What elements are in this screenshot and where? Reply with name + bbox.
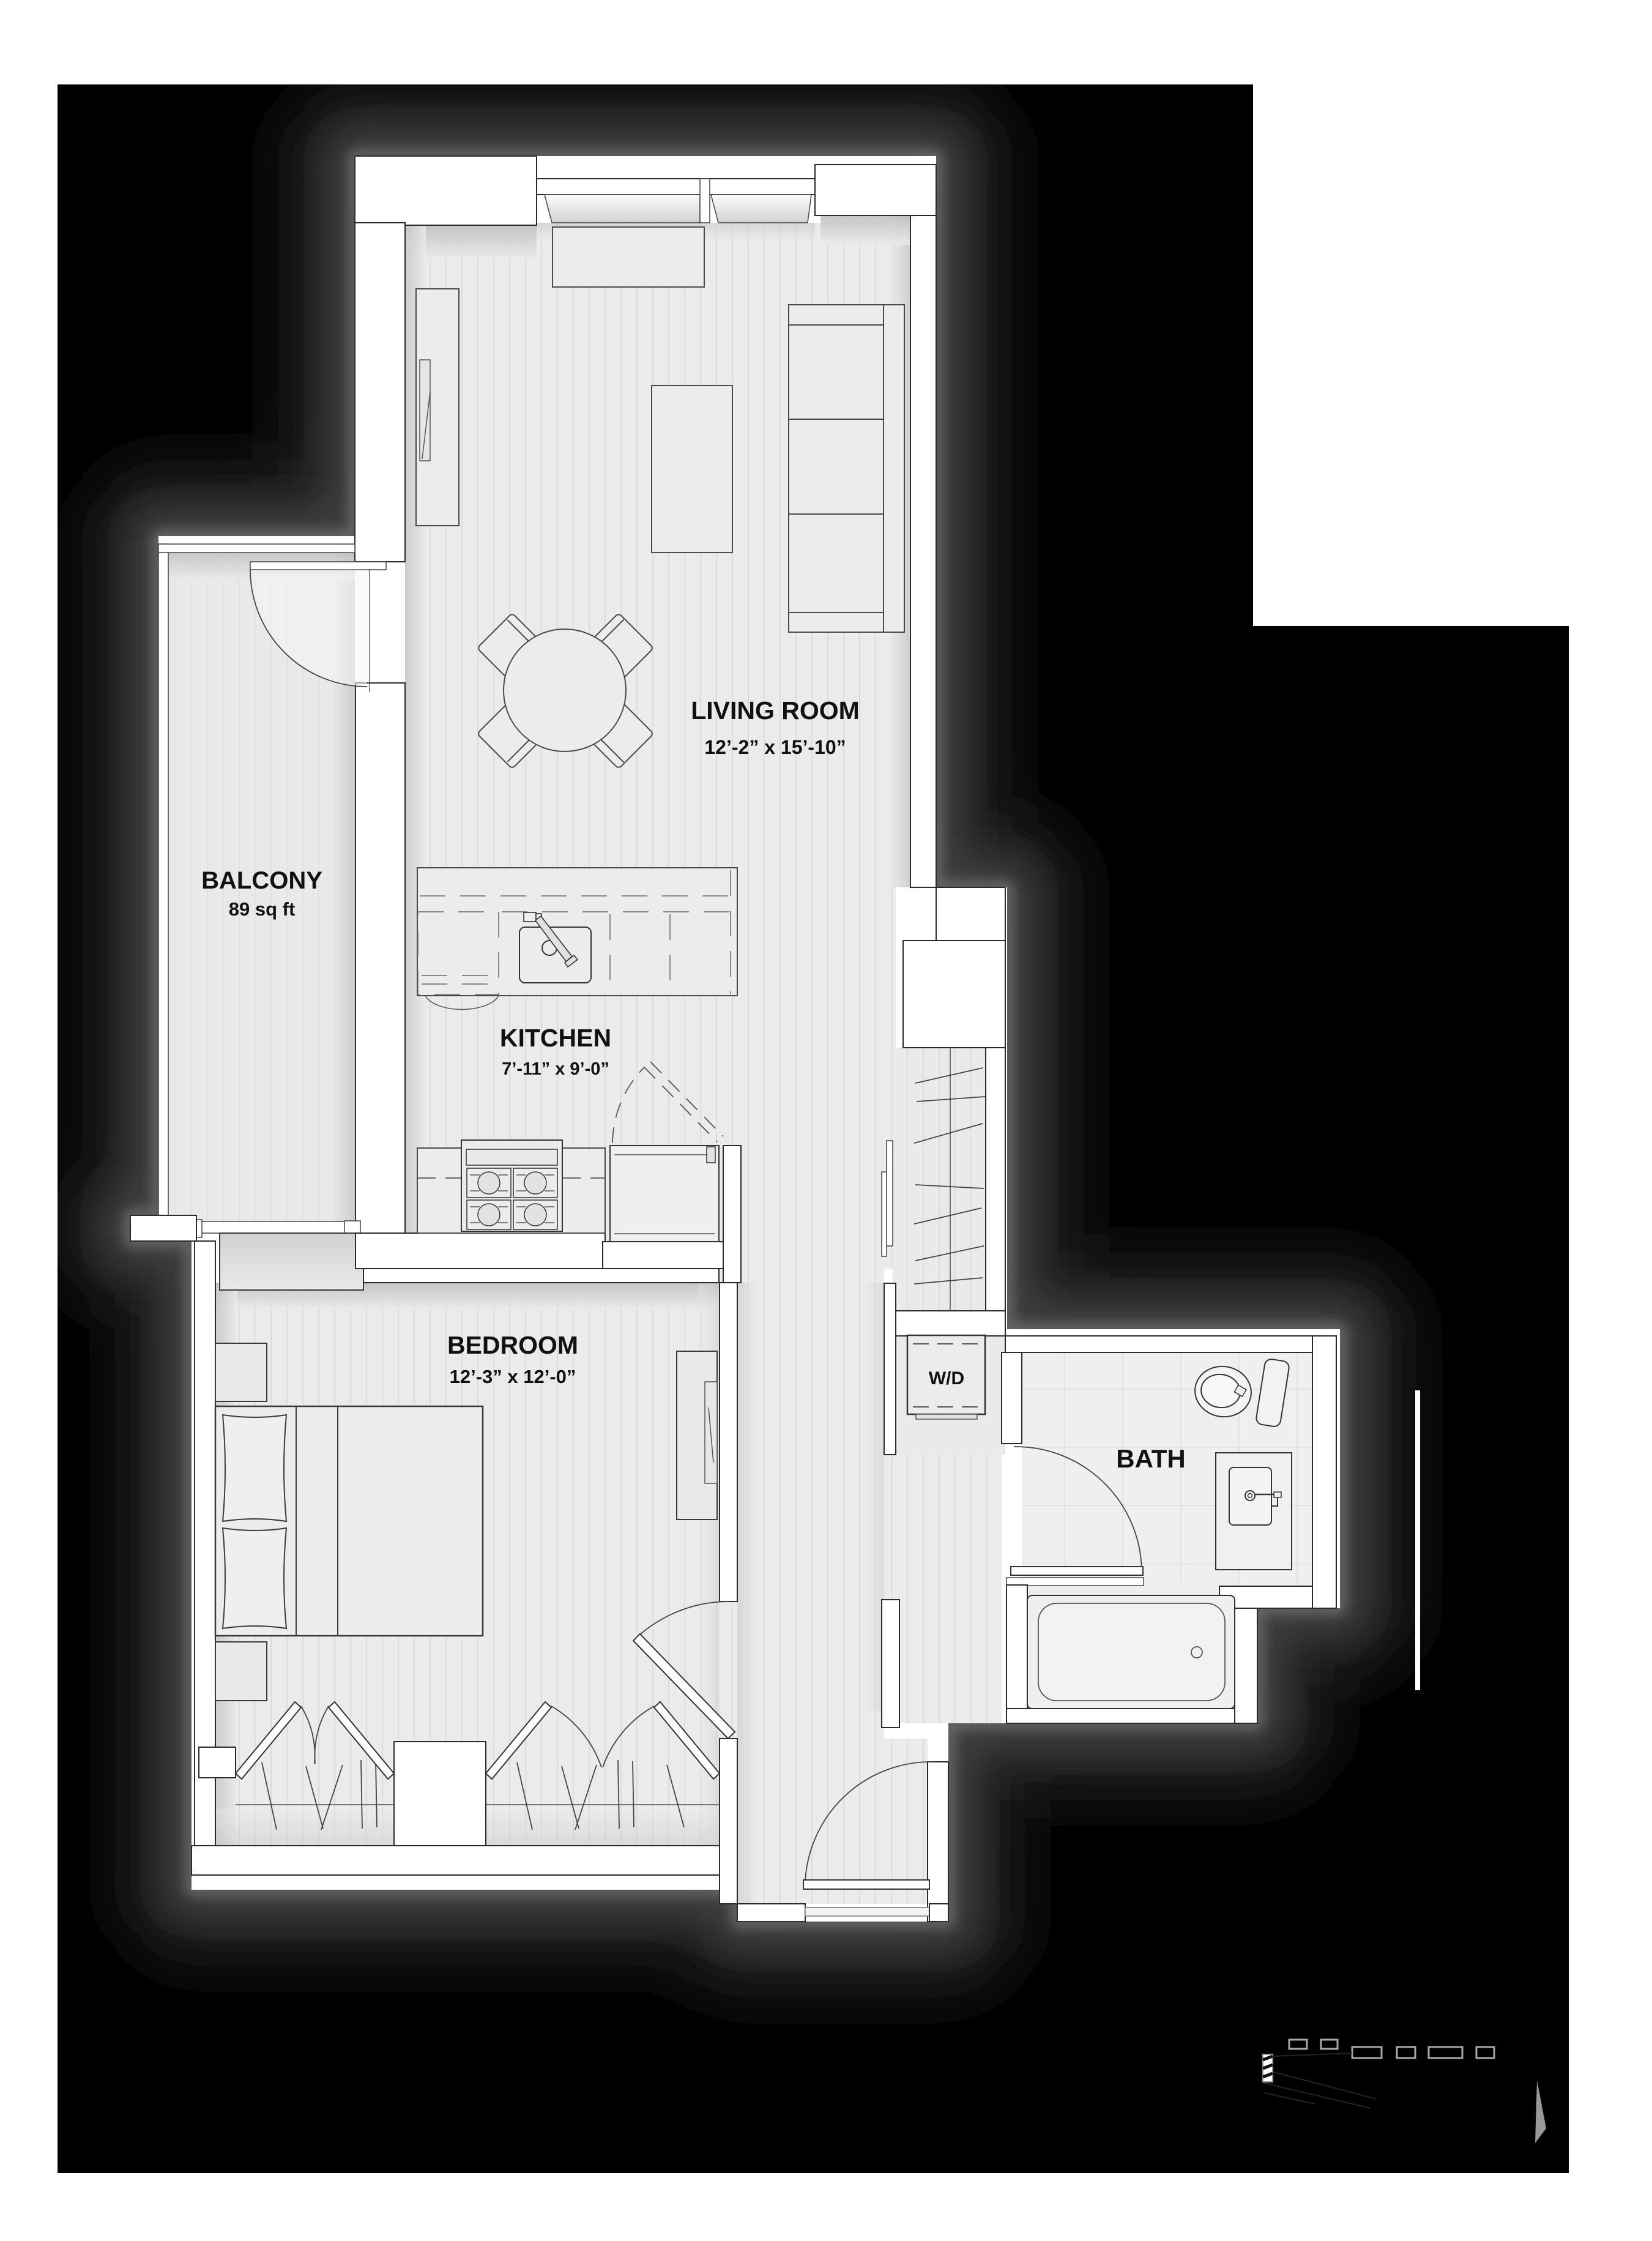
svg-text:7’-11” x 9’-0”: 7’-11” x 9’-0” bbox=[502, 1059, 609, 1079]
svg-text:BATH: BATH bbox=[1116, 1444, 1186, 1473]
svg-text:89 sq ft: 89 sq ft bbox=[229, 898, 296, 920]
svg-text:W/D: W/D bbox=[929, 1368, 964, 1389]
svg-text:BEDROOM: BEDROOM bbox=[447, 1331, 578, 1359]
svg-text:LIVING ROOM: LIVING ROOM bbox=[691, 696, 860, 725]
svg-text:12’-2” x 15’-10”: 12’-2” x 15’-10” bbox=[704, 736, 846, 758]
svg-text:KITCHEN: KITCHEN bbox=[500, 1024, 611, 1052]
svg-text:BALCONY: BALCONY bbox=[201, 867, 322, 894]
svg-text:12’-3” x 12’-0”: 12’-3” x 12’-0” bbox=[450, 1366, 576, 1387]
